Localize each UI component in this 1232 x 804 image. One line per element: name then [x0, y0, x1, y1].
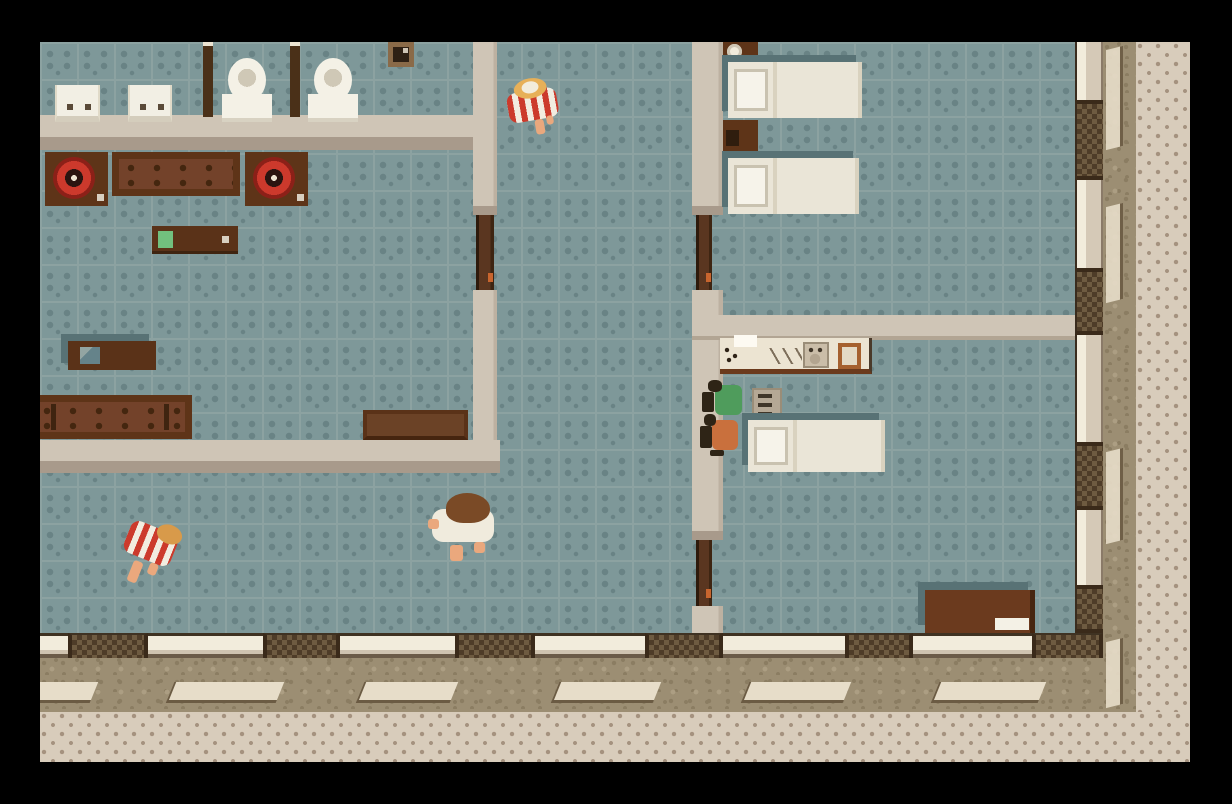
wall-picture	[388, 42, 414, 67]
nightstand	[723, 42, 758, 63]
sidewalk-right	[1136, 42, 1190, 762]
window	[68, 633, 148, 658]
paving-stone	[1106, 203, 1123, 303]
shadow-bit	[710, 450, 724, 456]
wall-hall-west-upper	[473, 42, 497, 206]
leg	[474, 542, 485, 553]
paving-stone	[1106, 46, 1123, 150]
sideboard	[152, 226, 238, 254]
sidewalk-bottom	[40, 712, 1190, 762]
door-lintel	[692, 531, 723, 540]
window	[645, 633, 723, 658]
brown-hair	[446, 493, 490, 523]
tv-stand	[68, 341, 156, 370]
window	[1075, 442, 1103, 510]
bed	[728, 158, 859, 214]
paving-stone	[741, 682, 851, 703]
paving-stone	[931, 682, 1046, 703]
orange-shirt	[712, 420, 738, 450]
door-lintel	[473, 206, 497, 215]
toilet	[222, 58, 272, 122]
leg	[534, 119, 545, 135]
appliance	[752, 388, 782, 421]
paving-stone	[1106, 638, 1123, 708]
figure-orange[interactable]	[700, 412, 742, 456]
paving-stone	[551, 682, 661, 703]
door-living-room[interactable]	[476, 215, 494, 290]
dark-hair	[704, 414, 716, 426]
nightstand	[723, 120, 758, 156]
window	[1075, 268, 1103, 335]
wall-hall-east-upper	[692, 42, 723, 206]
tv	[80, 347, 100, 364]
window	[845, 633, 913, 658]
sofa	[112, 152, 240, 196]
paving-stone	[356, 682, 458, 703]
desk	[925, 590, 1035, 633]
game-viewport[interactable]	[40, 42, 1190, 762]
arm	[428, 519, 439, 529]
window	[455, 633, 535, 658]
wall-living-south	[40, 440, 500, 473]
turntable	[45, 152, 108, 206]
paving-stone	[166, 682, 284, 703]
window	[1075, 585, 1103, 633]
sofa-long	[40, 395, 192, 439]
cutting-board	[838, 343, 861, 369]
leg	[450, 545, 463, 561]
cutlery	[724, 346, 740, 364]
knives	[768, 348, 802, 364]
leg	[546, 115, 554, 125]
leg	[146, 562, 159, 576]
dark-hair	[708, 380, 722, 392]
paving-stone	[1106, 448, 1123, 544]
door-kitchen[interactable]	[696, 540, 712, 606]
drawer-handle	[726, 130, 739, 146]
bed	[748, 420, 885, 472]
paving-stone	[40, 682, 98, 703]
toilet	[308, 58, 358, 122]
turntable	[245, 152, 308, 206]
bench	[363, 410, 468, 440]
window	[1032, 633, 1103, 658]
door-lintel	[692, 206, 723, 215]
wall-hall-east-lower	[692, 606, 723, 633]
guest-striped-shirt[interactable]	[105, 510, 188, 606]
bathroom-sink	[128, 85, 172, 122]
guest-white-shirt[interactable]	[428, 493, 504, 567]
stall-partition	[203, 42, 213, 117]
held-item	[702, 392, 714, 412]
held-item	[700, 426, 712, 448]
leg	[126, 560, 144, 584]
stall-partition	[290, 42, 300, 117]
window	[1075, 100, 1103, 180]
door-bedroom[interactable]	[696, 215, 712, 290]
small-item	[222, 236, 229, 243]
kitchen-sink	[803, 342, 829, 368]
bathroom-sink	[55, 85, 100, 122]
guest-striped-shirt[interactable]	[503, 74, 564, 140]
green-item	[158, 231, 173, 248]
kitchen-counter	[720, 338, 872, 374]
cup	[727, 44, 742, 59]
screen	[0, 0, 1232, 804]
paper	[995, 618, 1029, 630]
window	[263, 633, 340, 658]
bed	[728, 62, 862, 118]
exterior-wall-south	[40, 633, 1103, 658]
wall-hall-west-lower	[473, 290, 497, 440]
